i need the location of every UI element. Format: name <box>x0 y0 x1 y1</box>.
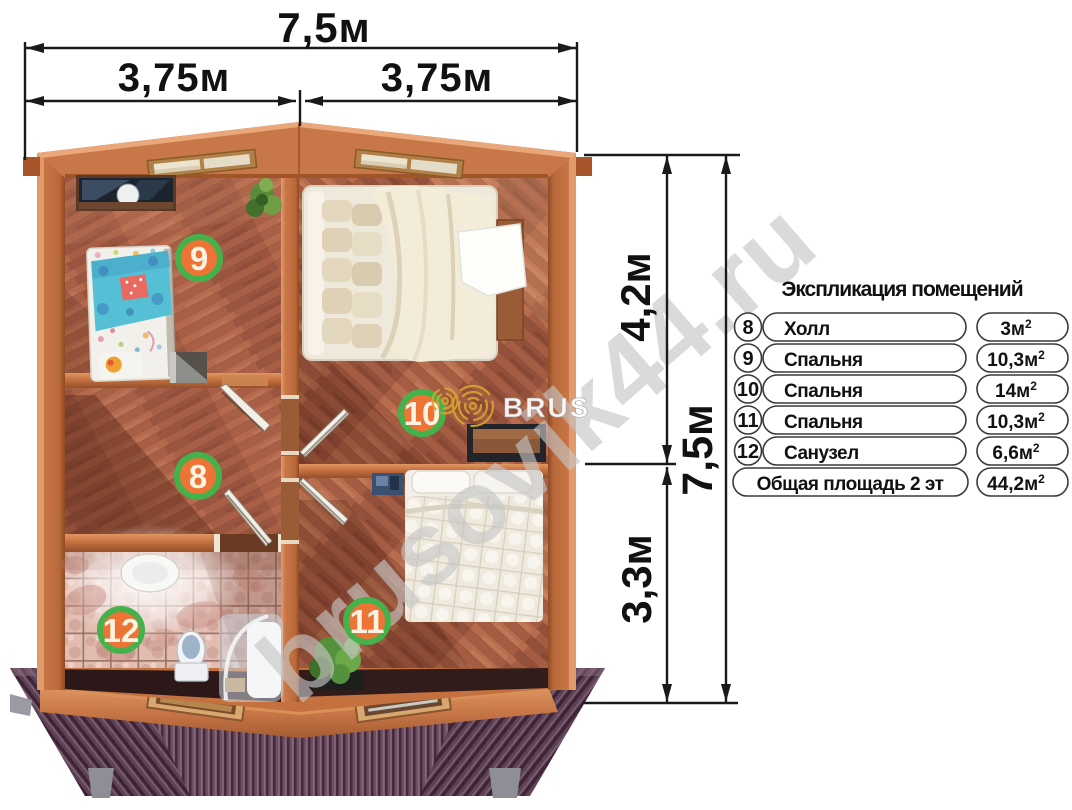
svg-text:3,3м: 3,3м <box>613 534 660 623</box>
svg-text:9: 9 <box>742 348 753 370</box>
svg-text:3,75м: 3,75м <box>118 56 230 100</box>
svg-text:7,5м: 7,5м <box>277 4 370 51</box>
svg-text:8: 8 <box>742 317 753 339</box>
svg-text:BRUS: BRUS <box>503 392 590 423</box>
svg-text:12: 12 <box>737 441 759 463</box>
svg-text:4,2м: 4,2м <box>612 252 659 341</box>
svg-text:Спальня: Спальня <box>784 412 863 433</box>
svg-text:Спальня: Спальня <box>784 381 863 402</box>
svg-text:9: 9 <box>190 240 208 277</box>
svg-text:11: 11 <box>350 603 385 640</box>
svg-text:Холл: Холл <box>784 319 830 340</box>
svg-text:Общая площадь 2 эт: Общая площадь 2 эт <box>757 474 944 495</box>
svg-text:12: 12 <box>103 612 140 649</box>
svg-text:7,5м: 7,5м <box>674 404 722 496</box>
svg-text:3,75м: 3,75м <box>381 56 493 100</box>
svg-text:44,2м2: 44,2м2 <box>987 472 1045 495</box>
svg-text:Спальня: Спальня <box>784 350 863 371</box>
svg-text:10: 10 <box>404 395 441 432</box>
svg-text:8: 8 <box>189 458 207 495</box>
svg-text:Экспликация помещений: Экспликация помещений <box>781 278 1022 301</box>
svg-text:10,3м2: 10,3м2 <box>987 348 1045 371</box>
svg-text:10: 10 <box>737 379 759 401</box>
svg-text:10,3м2: 10,3м2 <box>987 410 1045 433</box>
svg-text:6,6м2: 6,6м2 <box>992 441 1039 464</box>
svg-text:11: 11 <box>737 410 758 432</box>
svg-text:Санузел: Санузел <box>784 443 859 464</box>
